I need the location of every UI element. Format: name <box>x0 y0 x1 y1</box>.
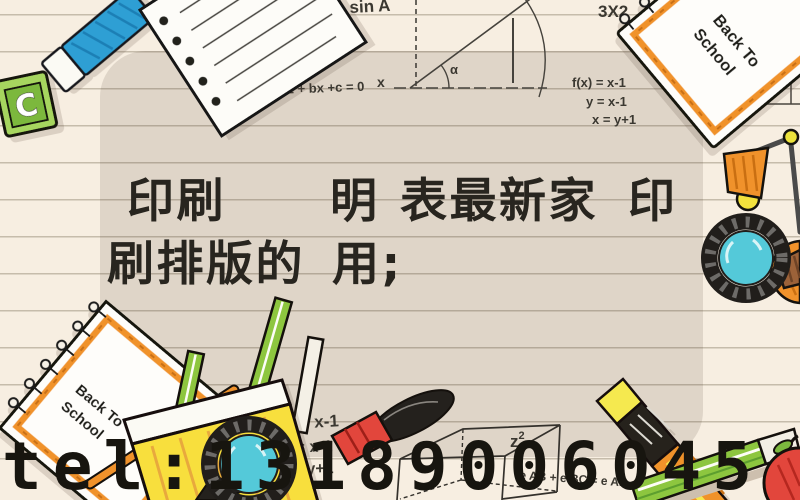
title-line1-seg3: 表最新家 <box>400 178 598 225</box>
lamp-joint <box>784 130 798 144</box>
grade-badge: C <box>0 71 57 137</box>
title-line2-seg1: 刷排版的 <box>107 241 305 288</box>
poster-canvas: sin A ax2 + bx +c = 0 x α 3X2 f(x) = x-1… <box>0 0 800 500</box>
magnifier-right <box>702 214 800 302</box>
title-line1-seg4: 印 <box>628 178 678 225</box>
trig-diagram <box>394 0 547 97</box>
title-line2-seg2: 用; <box>332 241 403 288</box>
notebook-page <box>140 0 366 136</box>
title-line1-seg1: 印刷 <box>127 178 226 225</box>
title-line1-seg2: 明 <box>330 178 380 225</box>
white-pencil <box>292 337 323 433</box>
notepad-top-right: Back To School <box>610 0 800 148</box>
tel-number: tel:13189006045 <box>2 434 763 500</box>
blue-eraser <box>41 0 154 92</box>
